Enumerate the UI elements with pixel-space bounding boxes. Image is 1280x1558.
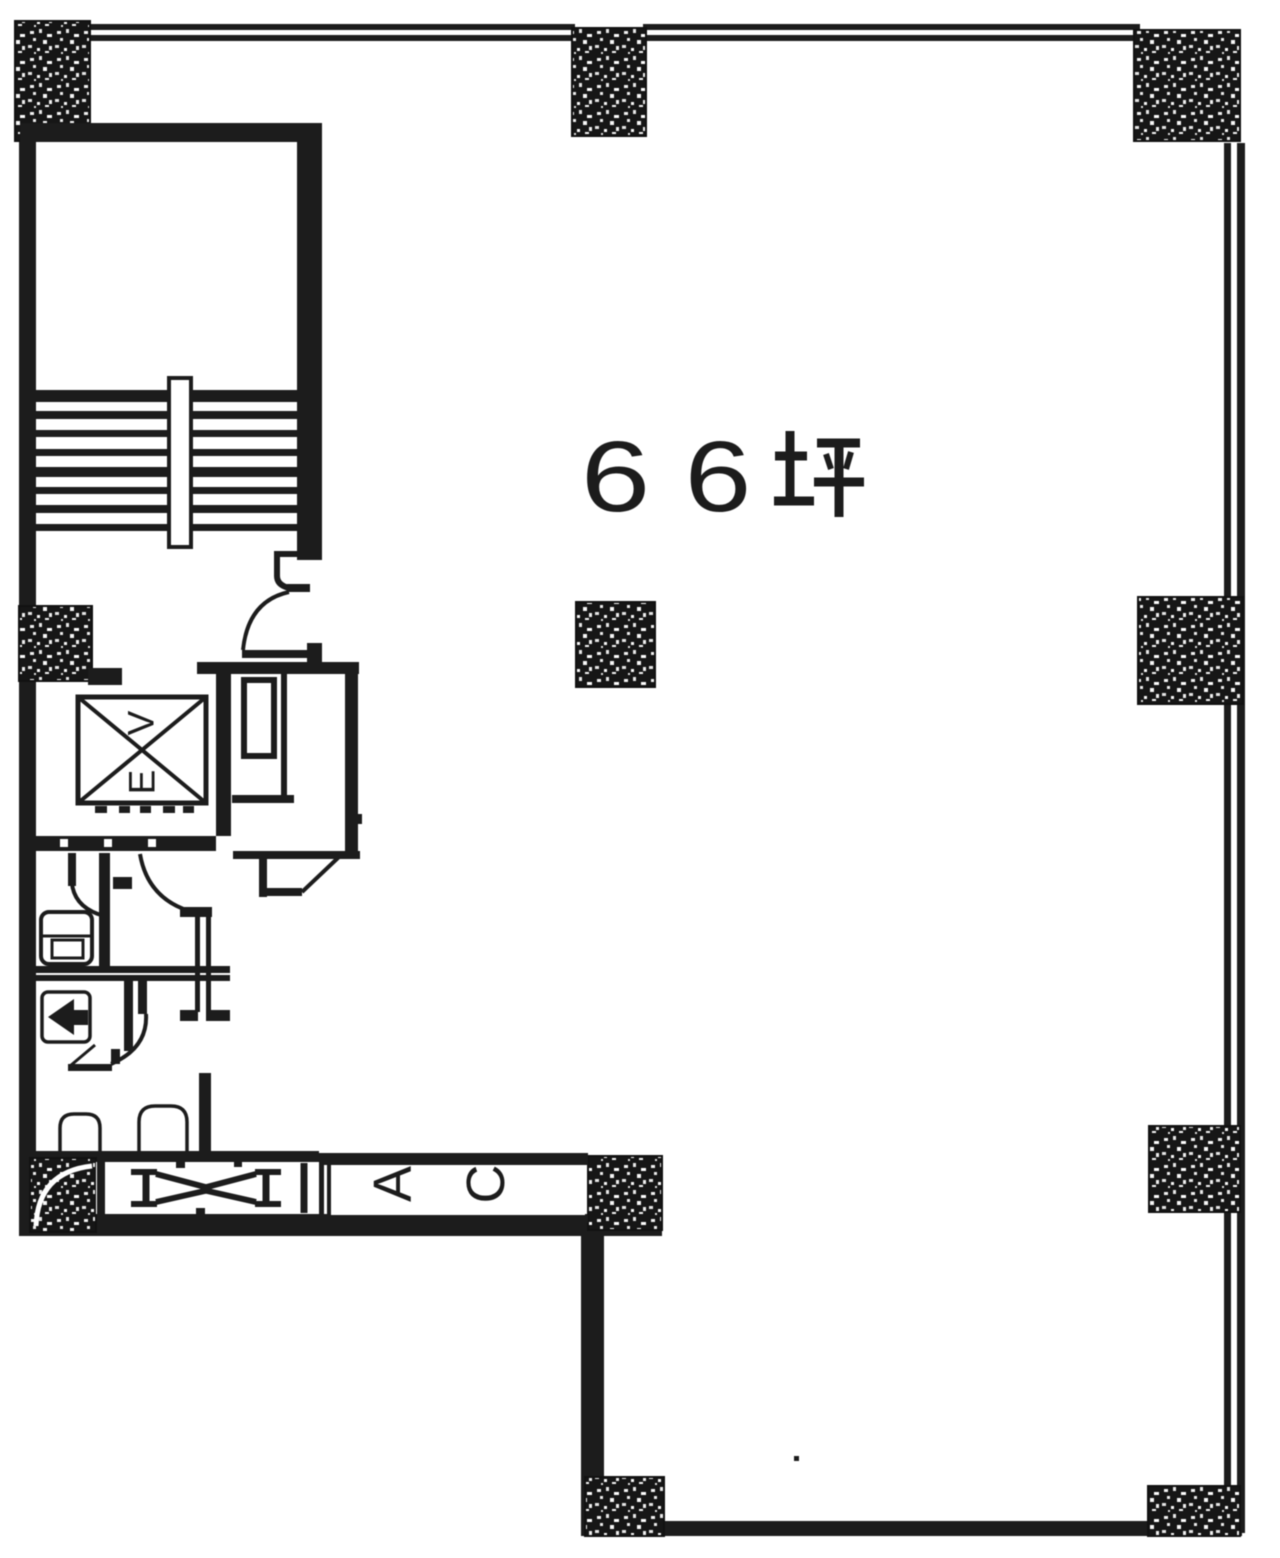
svg-text:A: A	[363, 1166, 423, 1202]
svg-text:C: C	[456, 1165, 516, 1204]
svg-text:E: E	[122, 770, 163, 795]
svg-text:6: 6	[581, 421, 651, 532]
svg-text:6: 6	[685, 421, 752, 532]
svg-text:V: V	[121, 710, 162, 735]
